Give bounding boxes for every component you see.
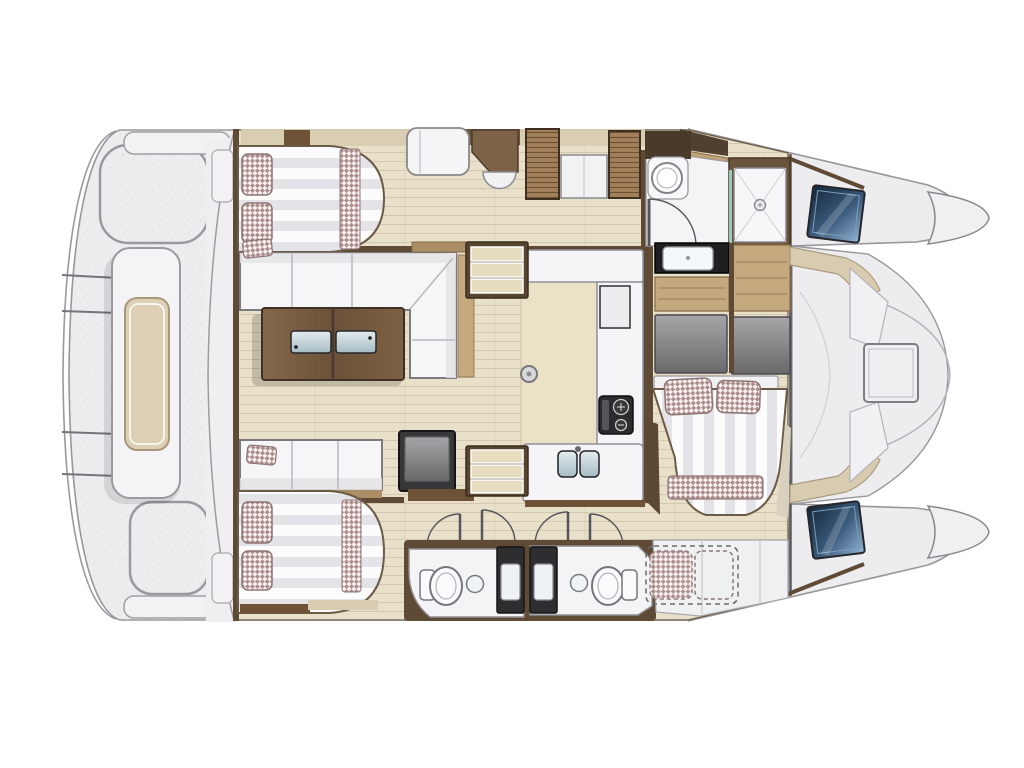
coffee-table-latch-2: [368, 336, 372, 340]
shower-column-right-door: [534, 564, 553, 600]
step-5: [471, 465, 523, 478]
guest-bed-top-pillow-1: [242, 154, 272, 195]
salon-post-center: [527, 372, 532, 377]
owner-wardrobe-gray-a: [655, 315, 727, 373]
salon-sofa-backrest-right: [446, 253, 456, 378]
coffee-table-glass-1: [291, 331, 331, 353]
shower-column-left-door: [501, 564, 520, 600]
corridor-chaise: [407, 128, 469, 175]
salon-sofa-accent-pillow: [242, 238, 273, 258]
owner-bed-rail-left: [645, 420, 660, 515]
owner-wardrobe-gray-b: [731, 317, 790, 374]
step-1: [471, 247, 523, 261]
foredeck-locker: [864, 344, 918, 402]
shower-glass-door: [729, 170, 732, 244]
step-4: [471, 450, 523, 463]
guest-bed-bottom-pillow-1: [242, 502, 272, 543]
owner-vanity-faucet: [686, 256, 690, 260]
owner-cabinet-divider: [729, 243, 734, 373]
cockpit-corner-seat-top: [212, 150, 233, 202]
guest-bed-bottom-pillow-2: [242, 551, 272, 590]
galley-appliance-outline: [600, 286, 630, 328]
galley-sink-right: [580, 451, 599, 477]
galley-sink-left: [558, 451, 577, 477]
salon-sofa-backrest-top: [240, 253, 456, 263]
salon-bench-accent-pillow: [246, 445, 276, 465]
salon-trim-tan: [412, 242, 474, 252]
guest-bed-bottom-runner: [342, 500, 361, 592]
cooktop-knob-strip: [602, 400, 609, 430]
companionway-steps-starboard: [466, 446, 528, 496]
guest-bed-top-runner: [340, 149, 360, 249]
guest-bed-top-pillow-2: [242, 203, 272, 243]
catamaran-floor-plan-page: [0, 0, 1024, 768]
basin-right: [571, 575, 588, 592]
hullside-shelf-bottom-tan: [308, 600, 378, 610]
port-shower: [729, 158, 790, 246]
galley-floor: [521, 273, 597, 445]
owner-locker-a: [655, 277, 729, 311]
fridge-cabinet-panel: [405, 437, 449, 481]
deck-hatch-bottom: [807, 501, 865, 559]
hullside-shelf-top-wood-1: [284, 130, 310, 145]
starboard-aft-cabin: [238, 491, 384, 613]
fridge-base-trim: [408, 489, 474, 501]
owner-bed-pillow-2: [716, 380, 760, 413]
starboard-bathrooms: [404, 540, 656, 621]
step-3: [471, 279, 523, 293]
hanging-locker-2: [609, 131, 640, 198]
companionway-steps-port: [466, 242, 528, 298]
floor-plan-svg: [0, 0, 1024, 768]
coffee-table-glass-2: [336, 331, 376, 353]
port-aft-cabin: [238, 146, 384, 252]
deck-hatch-top: [807, 185, 865, 243]
cockpit-corner-seat-bottom: [212, 553, 233, 603]
coffee-table-latch-1: [294, 345, 298, 349]
sunpad-cushion: [650, 551, 692, 599]
galley-counter-top: [521, 250, 643, 282]
shower-drain-dot: [758, 203, 762, 207]
galley-base-trim: [525, 500, 645, 507]
owner-bed-runner: [668, 476, 763, 499]
toilet-right-tank: [622, 570, 637, 600]
stern-bench-cushion: [125, 298, 169, 450]
basin-left: [467, 576, 484, 593]
salon-bench-backrest: [240, 478, 382, 490]
hanging-locker-1: [526, 129, 559, 199]
step-6: [471, 480, 523, 493]
step-2: [471, 263, 523, 277]
bathroom-top-counter-trim: [645, 131, 691, 159]
galley-faucet: [575, 446, 581, 452]
owner-bed-pillow-1: [664, 378, 713, 415]
hullside-shelf-bottom-wood: [240, 604, 310, 613]
